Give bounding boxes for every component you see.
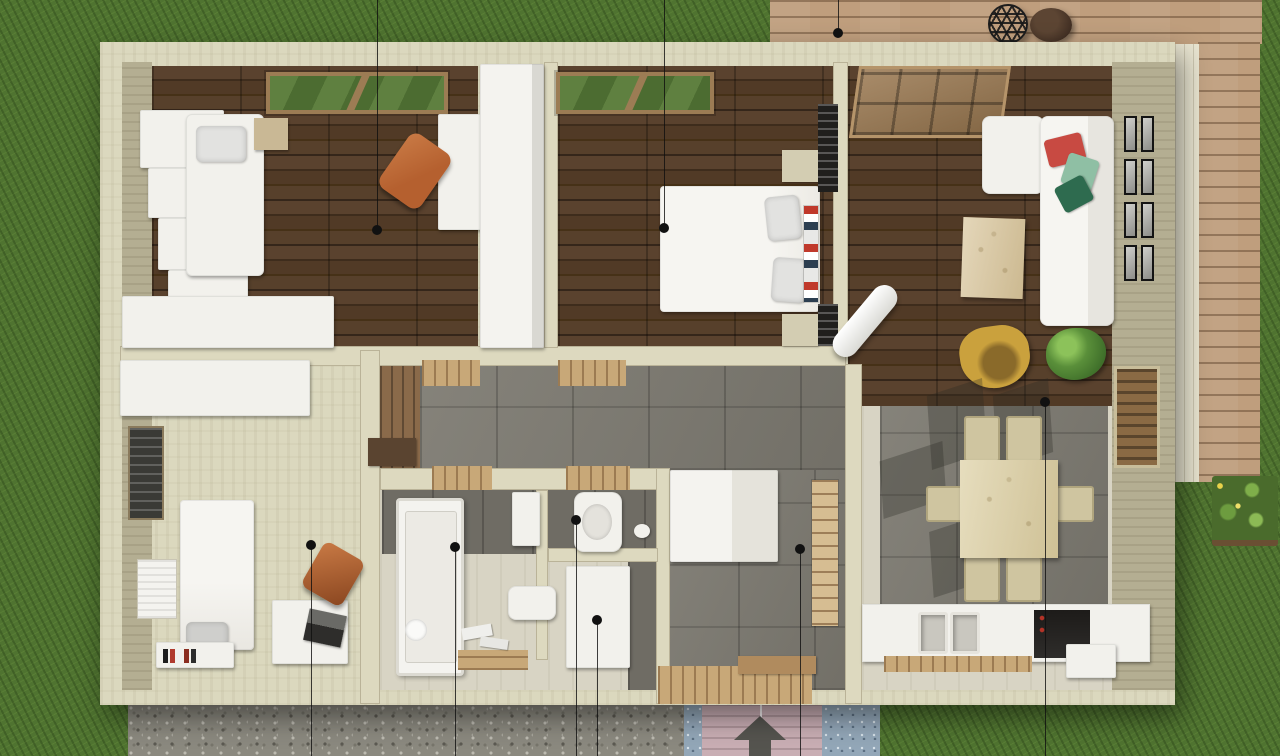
leader-line <box>455 547 456 756</box>
marker-dot <box>1040 397 1050 407</box>
marker-dot <box>795 544 805 554</box>
annotation-layer <box>0 0 1280 756</box>
marker-dot <box>659 223 669 233</box>
leader-line <box>1045 402 1046 756</box>
marker-dot <box>571 515 581 525</box>
leader-line <box>664 0 665 228</box>
leader-line <box>311 545 312 756</box>
marker-dot <box>450 542 460 552</box>
marker-dot <box>306 540 316 550</box>
marker-dot <box>592 615 602 625</box>
leader-line <box>377 0 378 230</box>
marker-dot <box>372 225 382 235</box>
leader-line <box>800 549 801 756</box>
leader-line <box>597 620 598 756</box>
floor-plan-render <box>0 0 1280 756</box>
leader-line <box>576 520 577 756</box>
marker-dot <box>833 28 843 38</box>
